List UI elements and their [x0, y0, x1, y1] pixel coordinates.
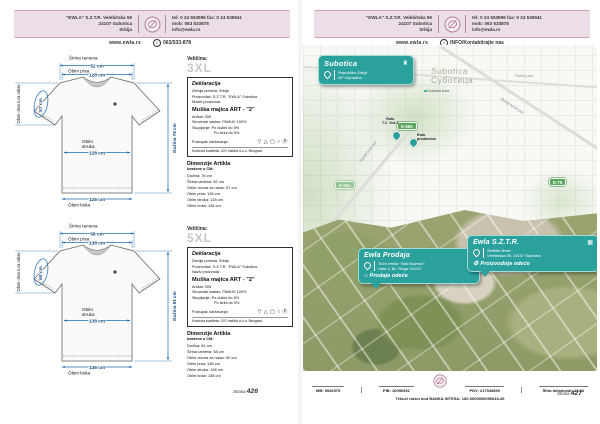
hip-label: Obim boka — [68, 203, 91, 208]
declaration-line: Model proizvoda: — [192, 100, 288, 106]
callout-line: Hala 3, Bc Tezga 311/23 — [378, 266, 425, 271]
region-line: AP Vojvodina — [338, 75, 367, 80]
road-badge: E-662 — [335, 181, 355, 189]
page-label: Strana — [233, 389, 245, 394]
company-address: "EWLA" S.Z.T.R. Velebitska 59 24107 Subo… — [14, 15, 139, 33]
callout-pointer — [480, 271, 490, 277]
factory-icon: ⚙ — [473, 260, 478, 267]
company-contact: tel: 0 24 553999 fax: 0 24 539941 mob: 0… — [465, 15, 590, 33]
chest-logo-mark — [113, 102, 116, 105]
chest-value: 128 cm — [89, 72, 105, 78]
care-label: Postupak održavanja: — [192, 310, 229, 314]
chest-logo-mark — [113, 270, 116, 273]
poi-label: Gradska kuća — [424, 89, 449, 93]
care-symbols-icon: ▽ △ ▢ ○ Ⓟ — [258, 138, 289, 145]
footer-divider — [361, 387, 362, 393]
company-logo — [139, 16, 165, 33]
tshirt-diagram-5xl: Širina ramena 58 cm Obim prsa 138 cm Obi… — [12, 215, 184, 377]
region-box: Subotica ♜ Republika Srbija AP Vojvodina — [318, 55, 414, 85]
map-pin-label: Ewla T.C. Vuk 2 — [382, 117, 398, 125]
dimension-row: Obim boka: 128 cm — [187, 203, 293, 209]
info-icon: i — [153, 39, 161, 47]
city-name-cyrillic: Суботица — [431, 76, 473, 85]
callout-ewla-sztr[interactable]: Ewla S.Z.T.R. ▦ Sedište firme: Velebitsk… — [467, 235, 597, 272]
spec-panel-5xl: Veličina: 5XL Deklaracija Zemlja porekla… — [187, 226, 293, 379]
declaration-line: Po širini do 5% — [192, 301, 288, 307]
shoulder-value: 52 cm — [90, 63, 104, 69]
page-label: Strana — [557, 391, 569, 396]
sleeve-opening-value: 57 cm — [38, 98, 44, 112]
callout-line: Velebitska 59, 24107 Subotica — [487, 253, 541, 258]
declaration-box: Deklaracija Zemlja porekla: Srbija Proiz… — [187, 77, 293, 157]
declaration-title: Deklaracija — [192, 251, 288, 257]
catalog-spread: "EWLA" S.Z.T.R. Velebitska 59 24107 Subo… — [0, 0, 600, 424]
pin-label-line: prodavnica — [417, 137, 436, 141]
chest-label: Obim prsa — [68, 69, 90, 74]
dimensions-subtitle: Izražene u CM: — [187, 337, 293, 341]
shop-icon: ⌂ — [364, 273, 368, 279]
header-subband: www.ewla.rs i 063/533-878 — [0, 38, 300, 47]
callout-title: Ewla S.Z.T.R. — [473, 239, 519, 246]
sleeve-opening-value: 60 cm — [38, 266, 44, 280]
tower-icon: ♜ — [403, 60, 408, 67]
logo-emblem-icon — [444, 16, 461, 33]
quality-line: Kontrola kvaliteta: CIS Institut d.o.o. … — [192, 147, 288, 153]
contact-line[interactable]: info@ewla.rs — [472, 27, 590, 33]
logo-emblem-icon — [433, 374, 447, 388]
chest-value: 138 cm — [89, 240, 105, 246]
poi-dot-icon — [424, 90, 427, 93]
footer-mb: MB: 5546979 — [312, 386, 344, 393]
sleeve-opening-label: Obim otvora za rukav — [16, 84, 21, 124]
website-link[interactable]: www.ewla.rs — [109, 40, 141, 46]
road-badge: E-75 — [549, 178, 566, 186]
contact-line[interactable]: info@ewla.rs — [172, 27, 290, 33]
company-logo — [439, 16, 465, 33]
pin-icon — [363, 261, 373, 271]
logo-emblem-icon — [144, 16, 161, 33]
length-label: Dužina 78 cm — [172, 123, 177, 152]
page-number: 427 — [571, 390, 582, 397]
waist-value: 138 cm — [89, 318, 105, 324]
declaration-line: Po širini do 5% — [192, 131, 288, 137]
product-name: Muška majica ART - "2" — [192, 107, 288, 113]
tagline-text: 063/533-878 — [163, 40, 191, 46]
spec-panel-3xl: Veličina: 3XL Deklaracija Zemlja porekla… — [187, 56, 293, 209]
street-label: Palićki put — [515, 73, 533, 78]
callout-pointer — [371, 283, 381, 289]
map-pin-label: Ewla prodavnica — [417, 133, 436, 141]
chest-label: Obim prsa — [68, 237, 90, 242]
pin-icon — [323, 70, 333, 80]
shoulder-label: Širina ramena — [69, 55, 98, 61]
header-tagline: i 063/533-878 — [153, 39, 191, 47]
size-value: 5XL — [187, 232, 293, 244]
quality-line: Kontrola kvaliteta: CIS Institut d.o.o. … — [192, 317, 288, 323]
waist-label: struka — [82, 312, 95, 317]
page-number-left: Strana 426 — [233, 388, 258, 395]
declaration-line: Naziv proizvoda: — [192, 270, 288, 276]
callout-ewla-prodaja[interactable]: Ewla Prodaja ▦ Tržni centar "Mali Bajmok… — [358, 248, 480, 284]
waist-value: 128 cm — [89, 150, 105, 156]
callout-title: Ewla Prodaja — [364, 252, 410, 259]
hip-value: 128 cm — [89, 197, 105, 203]
region-title: Subotica — [324, 59, 357, 68]
page-number: 426 — [247, 388, 258, 395]
length-label: Dužina 81 cm — [172, 291, 177, 320]
product-name: Muška majica ART - "2" — [192, 277, 288, 283]
building-icon: ▦ — [587, 239, 593, 246]
address-line: Srbija — [14, 27, 132, 33]
waist-label: struka — [82, 144, 95, 149]
hip-label: Obim boka — [68, 371, 91, 376]
footer-pib: PIB: 10096351 — [379, 386, 414, 393]
company-address: "EWLA" S.Z.T.R. Velebitska 59 24107 Subo… — [314, 15, 439, 33]
page-number-right: Strana 427 — [557, 390, 582, 397]
footer-divider — [521, 387, 522, 393]
sleeve-opening-label: Obim otvora za rukav — [16, 252, 21, 292]
shoulder-value: 58 cm — [90, 231, 104, 237]
company-footer: MB: 5546979 PIB: 10096351 PDV: 217549890… — [312, 374, 588, 401]
tshirt-outline — [34, 245, 160, 361]
company-logo — [433, 374, 447, 393]
city-map[interactable]: Subotica Суботица Gradska kuća Palićki p… — [303, 45, 597, 371]
declaration-title: Deklaracija — [192, 81, 288, 87]
page-right: "EWLA" S.Z.T.R. Velebitska 59 24107 Subo… — [300, 0, 600, 424]
address-line: Srbija — [314, 27, 432, 33]
callout-footer: Proizvodnja odeće — [480, 261, 529, 267]
care-symbols-icon: ▽ △ ▢ ○ Ⓟ — [258, 308, 289, 315]
page-gutter — [297, 0, 303, 424]
page-left: "EWLA" S.Z.T.R. Velebitska 59 24107 Subo… — [0, 0, 300, 424]
header-band: "EWLA" S.Z.T.R. Velebitska 59 24107 Subo… — [14, 10, 290, 38]
shoulder-label: Širina ramena — [69, 223, 98, 229]
header-band: "EWLA" S.Z.T.R. Velebitska 59 24107 Subo… — [314, 10, 590, 38]
dimension-row: Obim boka: 138 cm — [187, 373, 293, 379]
tshirt-diagram-3xl: Širina ramena 52 cm Obim prsa 128 cm Obi… — [12, 47, 184, 209]
dimensions-subtitle: Izražene u CM: — [187, 167, 293, 171]
poi-text: Gradska kuća — [428, 89, 450, 93]
declaration-box: Deklaracija Zemlja porekla: Srbija Proiz… — [187, 247, 293, 327]
bank-account-line: Tekući račun kod BANKA INTESA: 160-00000… — [312, 396, 588, 401]
company-contact: tel: 0 24 553999 fax: 0 24 539941 mob: 0… — [165, 15, 290, 33]
callout-footer: Prodaja odeće — [370, 273, 408, 279]
road-badge: E-662 — [397, 122, 417, 130]
footer-pdv: PDV: 217549890 — [465, 386, 503, 393]
pin-label-line: T.C. Vuk 2 — [382, 121, 398, 125]
hip-value: 138 cm — [89, 365, 105, 371]
pin-icon — [472, 248, 482, 258]
city-label: Subotica Суботица — [431, 67, 473, 86]
tshirt-outline — [34, 77, 160, 193]
care-label: Postupak održavanja: — [192, 140, 229, 144]
size-value: 3XL — [187, 62, 293, 74]
